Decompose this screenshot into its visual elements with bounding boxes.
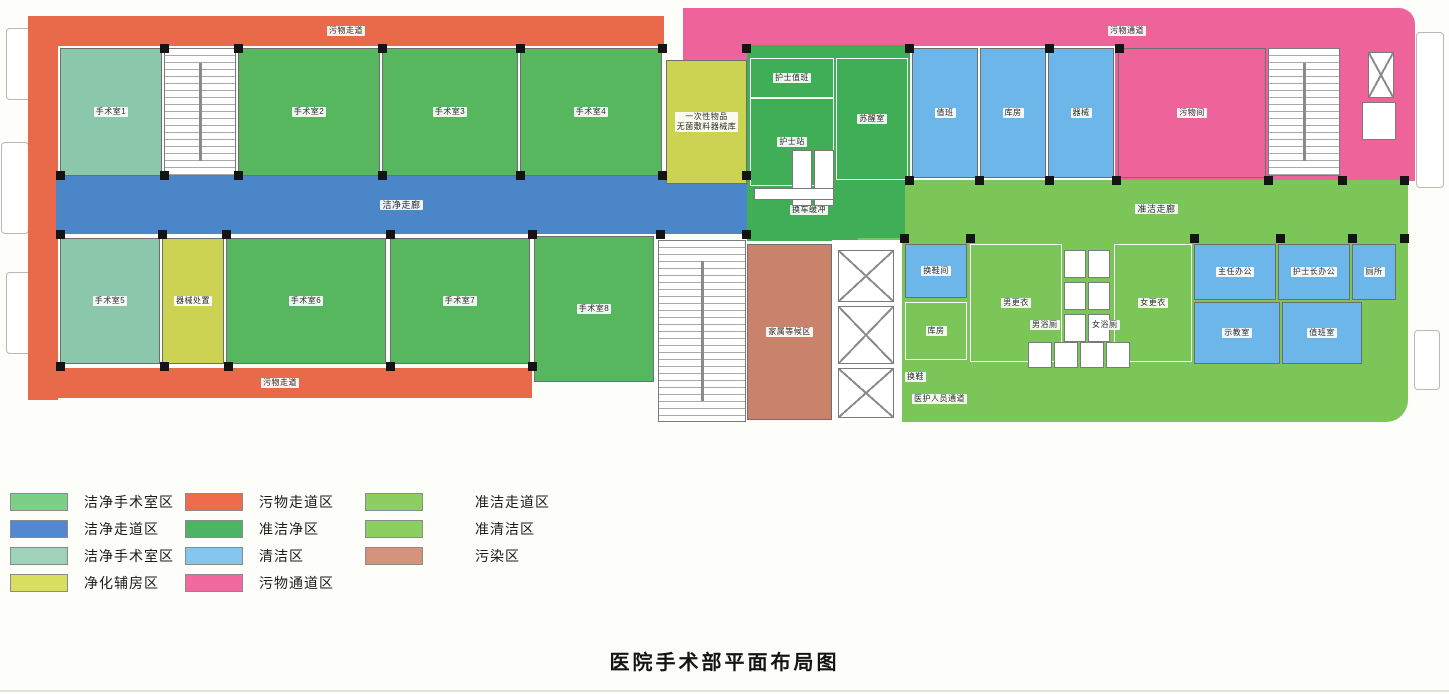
room-label: 一次性物品 无菌敷料器械库 (675, 112, 739, 132)
box-feature (1064, 282, 1086, 310)
wall-post (160, 171, 169, 180)
room-label: 库房 (926, 326, 947, 336)
room-label: 苏醒室 (857, 114, 887, 124)
stair-feature (1268, 48, 1340, 176)
legend-item: 污染区 (365, 542, 605, 569)
zone-waste-corridor-bottom: 污物走道 (28, 368, 532, 398)
room-or-5: 手术室5 (60, 238, 160, 364)
box-feature (754, 188, 834, 200)
wall-post (56, 362, 65, 371)
room-label: 手术室7 (443, 296, 477, 306)
stair-feature (658, 240, 746, 422)
page-title: 医院手术部平面布局图 (0, 646, 1449, 675)
legend-item: 洁净走道区 (10, 515, 185, 542)
zone-waste-passage-topcenter (683, 8, 747, 62)
room-label: 示教室 (1222, 328, 1252, 338)
wall-post (966, 234, 975, 243)
wall-post (528, 362, 537, 371)
wall-post (1112, 176, 1121, 185)
building-outline (1416, 32, 1444, 188)
wall-post (1400, 234, 1409, 243)
room-label: 护士站 (777, 137, 807, 147)
wall-post (1348, 234, 1357, 243)
room-waste-room: 污物间 (1118, 48, 1266, 178)
legend-item: 净化辅房区 (10, 569, 185, 596)
room-instrument-prep: 器械处置 (162, 238, 224, 364)
legend-item: 准清洁区 (365, 515, 605, 542)
room-family-waiting: 家属等候区 (747, 244, 832, 420)
room-label: 准洁走廊 (1135, 204, 1177, 214)
wall-post (1045, 176, 1054, 185)
room-label: 手术室4 (574, 107, 608, 117)
legend-swatch (10, 547, 68, 565)
room-label: 换车缓冲 (790, 205, 828, 215)
wall-post (56, 230, 65, 239)
zone-waste-corridor-top: 污物走道 (28, 16, 664, 46)
room-or-7: 手术室7 (390, 238, 530, 364)
wall-post (742, 171, 751, 180)
legend-swatch (185, 493, 243, 511)
room-label: 手术室3 (433, 107, 467, 117)
scan-edge-line (0, 690, 1449, 692)
wall-post (378, 171, 387, 180)
room-or-4: 手术室4 (520, 48, 662, 176)
room-recovery-room: 苏醒室 (836, 58, 908, 180)
box-feature (1054, 342, 1078, 368)
legend-label: 净化辅房区 (84, 573, 159, 593)
legend-label: 污物通道区 (259, 573, 334, 593)
elev-feature (838, 368, 894, 418)
room-office-director: 主任办公 (1194, 244, 1276, 300)
wall-post (900, 234, 909, 243)
floor-plan: 污物走道污物走道污物通道洁净走廊换车缓冲准洁走廊医护人员通道手术室1手术室2手术… (0, 0, 1449, 440)
room-label: 换鞋 (905, 372, 926, 382)
legend-label: 准清洁区 (475, 519, 535, 539)
wall-post (656, 230, 665, 239)
room-label: 手术室6 (289, 296, 323, 306)
room-label: 医护人员通道 (912, 394, 967, 404)
legend-label: 准洁净区 (259, 519, 319, 539)
wall-post (516, 171, 525, 180)
legend-item: 准洁走道区 (365, 488, 605, 515)
wall-post (975, 176, 984, 185)
room-label: 换鞋间 (921, 266, 951, 276)
wall-post (658, 44, 667, 53)
stair-feature (164, 48, 236, 176)
room-label: 厕所 (1364, 267, 1385, 277)
legend-swatch (185, 574, 243, 592)
box-feature (1088, 250, 1110, 278)
room-label: 护士长办公 (1291, 267, 1338, 277)
legend-label: 洁净走道区 (84, 519, 159, 539)
room-or-2: 手术室2 (238, 48, 380, 176)
legend-item: 污物通道区 (185, 569, 365, 596)
room-label: 手术室8 (577, 304, 611, 314)
legend-label: 洁净手术室区 (84, 546, 174, 566)
legend-label: 准洁走道区 (475, 492, 550, 512)
wall-post (378, 44, 387, 53)
box-feature (1088, 282, 1110, 310)
legend: 洁净手术室区洁净走道区洁净手术室区净化辅房区 污物走道区准洁净区清洁区污物通道区… (10, 488, 770, 596)
wall-post (160, 44, 169, 53)
box-feature (1362, 102, 1396, 140)
building-outline (1, 142, 29, 234)
zone-waste-corridor-left (28, 16, 58, 400)
legend-column-3: 准洁走道区准清洁区污染区 (365, 488, 605, 596)
building-outline (1414, 330, 1440, 390)
room-label: 器械 (1071, 108, 1092, 118)
wall-post (1045, 44, 1054, 53)
wall-post (158, 230, 167, 239)
box-feature (1106, 342, 1130, 368)
box-feature (1080, 342, 1104, 368)
room-or-8: 手术室8 (534, 236, 654, 382)
room-label: 值班 (935, 108, 956, 118)
legend-item: 洁净手术室区 (10, 488, 185, 515)
legend-swatch (185, 520, 243, 538)
elev-feature (1368, 52, 1394, 98)
legend-item: 清洁区 (185, 542, 365, 569)
room-demo-room: 示教室 (1194, 302, 1280, 364)
zone-waste-passage-top: 污物通道 (747, 8, 1415, 46)
wall-post (234, 171, 243, 180)
legend-label: 清洁区 (259, 546, 304, 566)
room-store-room: 库房 (905, 302, 967, 360)
room-label: 女更衣 (1138, 298, 1168, 308)
elev-feature (838, 306, 894, 364)
wall-post (658, 171, 667, 180)
room-label: 值班室 (1307, 328, 1337, 338)
wall-post (742, 230, 751, 239)
box-feature (1064, 314, 1086, 342)
wall-post (1264, 176, 1273, 185)
legend-label: 污染区 (475, 546, 520, 566)
room-label: 洁净走廊 (380, 200, 422, 210)
room-toilet: 厕所 (1352, 244, 1396, 300)
legend-swatch (10, 574, 68, 592)
wall-post (1115, 44, 1124, 53)
wall-post (516, 44, 525, 53)
room-label: 污物走道 (261, 378, 299, 388)
room-or-3: 手术室3 (382, 48, 518, 176)
wall-post (386, 362, 395, 371)
zone-clean-corridor: 洁净走廊 (56, 176, 747, 234)
legend-swatch (185, 547, 243, 565)
legend-swatch (365, 547, 423, 565)
room-label: 家属等候区 (766, 327, 813, 337)
room-label: 主任办公 (1216, 267, 1254, 277)
legend-item: 准洁净区 (185, 515, 365, 542)
zone-quasi-clean-corridor: 准洁走廊 (905, 180, 1408, 238)
legend-swatch (10, 493, 68, 511)
room-duty-room: 值班室 (1282, 302, 1362, 364)
room-or-1: 手术室1 (60, 48, 162, 176)
legend-item: 洁净手术室区 (10, 542, 185, 569)
room-clean-room-3: 器械 (1048, 48, 1114, 178)
wall-post (528, 230, 537, 239)
wall-post (1276, 234, 1285, 243)
legend-label: 洁净手术室区 (84, 492, 174, 512)
room-label: 器械处置 (174, 296, 212, 306)
room-shoe-change-room: 换鞋间 (905, 244, 967, 298)
legend-column-1: 洁净手术室区洁净走道区洁净手术室区净化辅房区 (10, 488, 185, 596)
room-label: 手术室5 (93, 296, 127, 306)
legend-swatch (10, 520, 68, 538)
legend-swatch (365, 520, 423, 538)
room-or-6: 手术室6 (226, 238, 386, 364)
wall-post (160, 362, 169, 371)
legend-swatch (365, 493, 423, 511)
legend-item: 污物走道区 (185, 488, 365, 515)
wall-post (234, 44, 243, 53)
room-label: 污物间 (1177, 108, 1207, 118)
wall-post (222, 230, 231, 239)
wall-post (1400, 176, 1409, 185)
room-label: 护士值班 (773, 73, 811, 83)
room-nurse-duty: 护士值班 (750, 58, 834, 98)
wall-post (742, 44, 751, 53)
room-label: 手术室1 (94, 107, 128, 117)
room-clean-room-2: 库房 (980, 48, 1046, 178)
room-clean-room-1: 值班 (912, 48, 978, 178)
room-label: 污物通道 (1108, 26, 1146, 36)
room-label: 手术室2 (292, 107, 326, 117)
elev-feature (838, 250, 894, 302)
room-label: 女浴厕 (1090, 320, 1120, 330)
wall-post (386, 230, 395, 239)
legend-label: 污物走道区 (259, 492, 334, 512)
room-label: 库房 (1003, 108, 1024, 118)
room-label: 男更衣 (1001, 298, 1031, 308)
room-label: 男浴厕 (1030, 320, 1060, 330)
legend-column-2: 污物走道区准洁净区清洁区污物通道区 (185, 488, 365, 596)
box-feature (1028, 342, 1052, 368)
box-feature (1064, 250, 1086, 278)
wall-post (224, 362, 233, 371)
room-label: 污物走道 (327, 26, 365, 36)
wall-post (1190, 234, 1199, 243)
wall-post (905, 176, 914, 185)
room-office-head-nurse: 护士长办公 (1278, 244, 1350, 300)
room-supply-room: 一次性物品 无菌敷料器械库 (666, 60, 747, 184)
wall-post (905, 44, 914, 53)
wall-post (1338, 176, 1347, 185)
wall-post (56, 171, 65, 180)
